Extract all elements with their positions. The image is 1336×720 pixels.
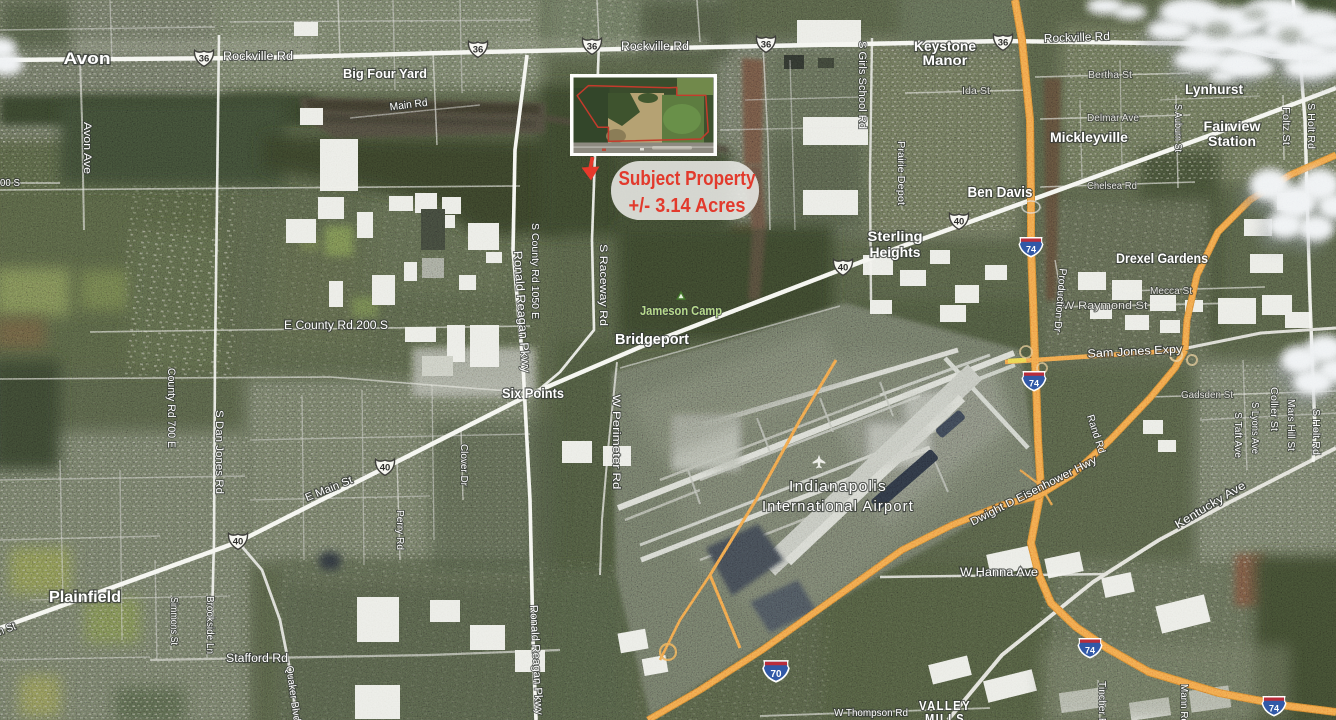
svg-text:00 S: 00 S [0,178,20,189]
svg-text:Perry Rd: Perry Rd [394,510,406,550]
svg-text:74: 74 [1029,379,1039,389]
svg-text:Mecca St: Mecca St [1150,286,1192,297]
svg-text:S Holt Rd: S Holt Rd [1310,409,1322,455]
svg-text:Drexel Gardens: Drexel Gardens [1116,251,1208,266]
svg-text:40: 40 [954,216,965,227]
svg-text:36: 36 [473,44,484,55]
svg-text:Mars Hill St: Mars Hill St [1285,399,1297,451]
svg-text:S Taft Ave: S Taft Ave [1232,412,1244,458]
svg-text:Bridgeport: Bridgeport [615,331,689,348]
svg-text:36: 36 [998,37,1009,48]
svg-text:S Lyons Ave: S Lyons Ave [1249,402,1261,454]
svg-text:36: 36 [587,41,598,52]
svg-text:Tincher Rd: Tincher Rd [1096,681,1108,720]
svg-text:W Hanna Ave: W Hanna Ave [960,567,1038,579]
svg-text:Sterling: Sterling [868,229,923,244]
svg-text:Brookside Ln: Brookside Ln [204,596,215,654]
svg-text:Ida St: Ida St [962,86,990,97]
svg-text:Six Points: Six Points [502,385,564,401]
svg-text:W Thompson Rd: W Thompson Rd [834,707,908,719]
svg-text:Keystone: Keystone [914,39,976,54]
svg-text:Manor: Manor [923,53,969,68]
svg-text:S Dan Jones Rd: S Dan Jones Rd [213,410,225,494]
svg-text:Avon Ave: Avon Ave [81,122,93,174]
svg-text:Collier St: Collier St [1268,387,1280,431]
svg-text:S Girls School Rd: S Girls School Rd [856,41,868,129]
svg-text:40: 40 [380,462,391,473]
svg-text:International Airport: International Airport [762,499,914,515]
svg-text:Delmar Ave: Delmar Ave [1087,113,1139,124]
svg-text:Rockville Rd: Rockville Rd [223,51,293,63]
svg-text:Ben Davis: Ben Davis [968,185,1033,201]
svg-text:70: 70 [770,669,782,680]
svg-text:Avon: Avon [64,49,111,68]
svg-text:Plainfield: Plainfield [49,589,121,606]
svg-text:Rockville Rd: Rockville Rd [621,41,689,53]
svg-text:Gadsden St: Gadsden St [1181,389,1233,401]
svg-text:Indianapolis: Indianapolis [789,479,887,495]
svg-text:Rockville Rd: Rockville Rd [1044,31,1110,45]
svg-text:County Rd 700 E: County Rd 700 E [165,368,177,448]
svg-text:Lynhurst: Lynhurst [1185,81,1243,97]
svg-text:74: 74 [1085,646,1095,656]
svg-text:Subject Property: Subject Property [619,168,757,190]
svg-text:E County Rd 200 S: E County Rd 200 S [284,320,388,332]
svg-text:Chelsea Rd: Chelsea Rd [1087,181,1137,192]
svg-text:S County Rd 1050 E: S County Rd 1050 E [529,223,541,319]
svg-text:Fairview: Fairview [1204,119,1262,134]
svg-text:36: 36 [761,39,772,50]
svg-text:40: 40 [838,262,849,273]
svg-text:Station: Station [1208,134,1256,149]
svg-text:Heights: Heights [870,245,921,260]
svg-text:W Raymond St: W Raymond St [1063,300,1148,312]
svg-text:Foltz St: Foltz St [1280,107,1292,145]
svg-text:Mann Rd: Mann Rd [1178,684,1190,720]
svg-text:Big Four Yard: Big Four Yard [343,66,427,81]
svg-text:Clover Dr: Clover Dr [458,444,470,486]
svg-text:40: 40 [233,536,244,547]
svg-text:Stafford Rd: Stafford Rd [226,653,288,665]
svg-text:+/- 3.14 Acres: +/- 3.14 Acres [629,195,746,217]
svg-text:S Auburn St: S Auburn St [1172,104,1184,152]
svg-text:S Holt Rd: S Holt Rd [1305,103,1317,149]
svg-text:Mickleyville: Mickleyville [1050,130,1128,145]
svg-text:Bertha St: Bertha St [1088,70,1132,81]
svg-text:Prairie Depot: Prairie Depot [895,141,907,205]
svg-text:74: 74 [1026,245,1036,255]
svg-text:W Perimeter Rd: W Perimeter Rd [610,395,622,490]
svg-text:74: 74 [1269,704,1279,714]
svg-text:MILLS: MILLS [925,712,965,720]
svg-text:36: 36 [199,53,210,64]
svg-text:VALLEY: VALLEY [919,699,971,713]
svg-text:S Raceway Rd: S Raceway Rd [597,244,609,326]
svg-text:Jameson Camp: Jameson Camp [640,303,722,318]
svg-text:Simmons St: Simmons St [168,597,179,645]
